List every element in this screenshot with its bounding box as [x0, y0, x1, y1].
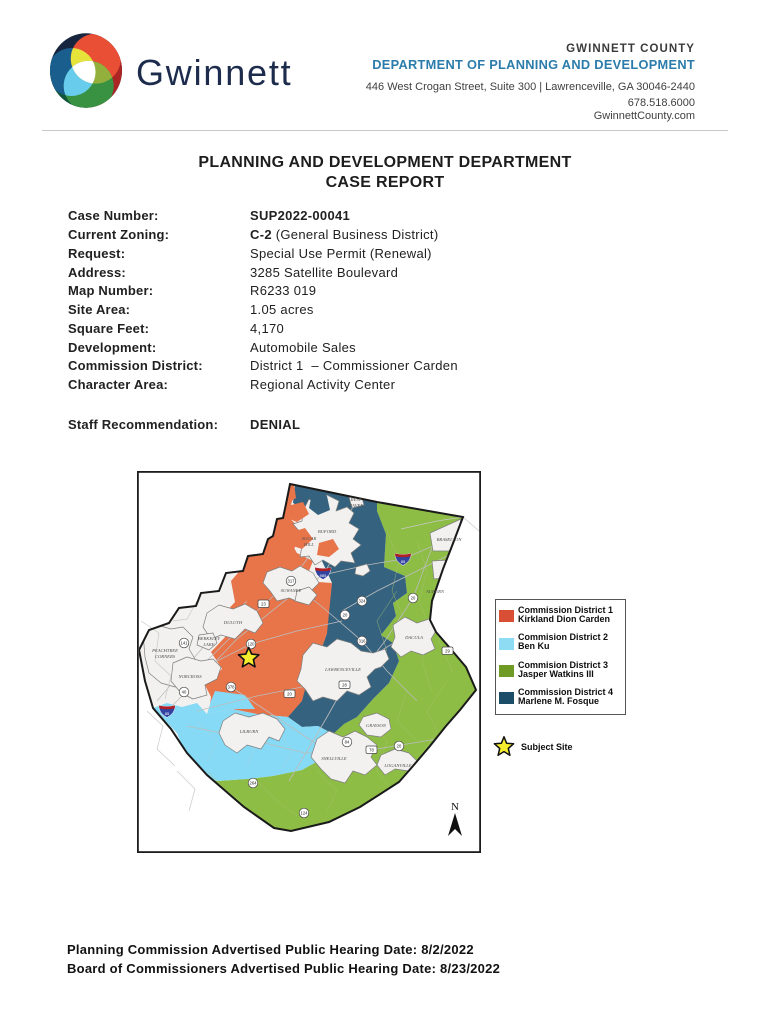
svg-text:317: 317	[288, 579, 296, 584]
svg-text:REST: REST	[350, 497, 362, 502]
svg-text:85: 85	[165, 711, 170, 716]
svg-text:AUBURN: AUBURN	[425, 589, 445, 594]
svg-text:DACULA: DACULA	[404, 635, 423, 640]
svg-text:84: 84	[345, 740, 350, 745]
svg-text:LILBURN: LILBURN	[239, 729, 260, 734]
svg-text:85: 85	[401, 559, 406, 564]
svg-text:20: 20	[411, 596, 416, 601]
svg-text:NORCROSS: NORCROSS	[178, 674, 203, 679]
svg-text:DULUTH: DULUTH	[223, 620, 243, 625]
svg-text:78: 78	[369, 748, 374, 753]
svg-text:HILL: HILL	[303, 542, 314, 547]
svg-text:LOGANVILLE: LOGANVILLE	[383, 763, 412, 768]
svg-text:20: 20	[343, 613, 348, 618]
svg-text:40: 40	[182, 690, 187, 695]
svg-text:BUFORD: BUFORD	[318, 529, 337, 534]
svg-text:985: 985	[320, 573, 327, 578]
svg-text:CORNERS: CORNERS	[155, 654, 176, 659]
svg-text:BERKELEY: BERKELEY	[198, 636, 221, 641]
svg-text:378: 378	[228, 685, 236, 690]
svg-text:N: N	[451, 801, 459, 813]
svg-text:HAVEN: HAVEN	[348, 503, 365, 508]
svg-text:124: 124	[301, 811, 309, 816]
svg-text:SNELLVILLE: SNELLVILLE	[321, 756, 347, 761]
svg-text:316: 316	[359, 639, 367, 644]
svg-text:SUWANEE: SUWANEE	[281, 588, 302, 593]
svg-text:120: 120	[248, 642, 256, 647]
svg-text:141: 141	[181, 641, 189, 646]
svg-text:PEACHTREE: PEACHTREE	[151, 648, 178, 653]
svg-text:324: 324	[359, 599, 367, 604]
svg-text:LAWRENCEVILLE: LAWRENCEVILLE	[324, 667, 361, 672]
svg-text:GRAYSON: GRAYSON	[366, 723, 387, 728]
svg-text:28: 28	[342, 683, 347, 688]
svg-text:SUGAR: SUGAR	[302, 536, 317, 541]
svg-text:LAKE: LAKE	[202, 642, 214, 647]
svg-text:23: 23	[261, 602, 266, 607]
svg-text:29: 29	[445, 649, 450, 654]
svg-text:20: 20	[397, 744, 402, 749]
svg-text:264: 264	[250, 781, 258, 786]
svg-text:BRASELTON: BRASELTON	[437, 537, 463, 542]
svg-text:20: 20	[287, 692, 292, 697]
